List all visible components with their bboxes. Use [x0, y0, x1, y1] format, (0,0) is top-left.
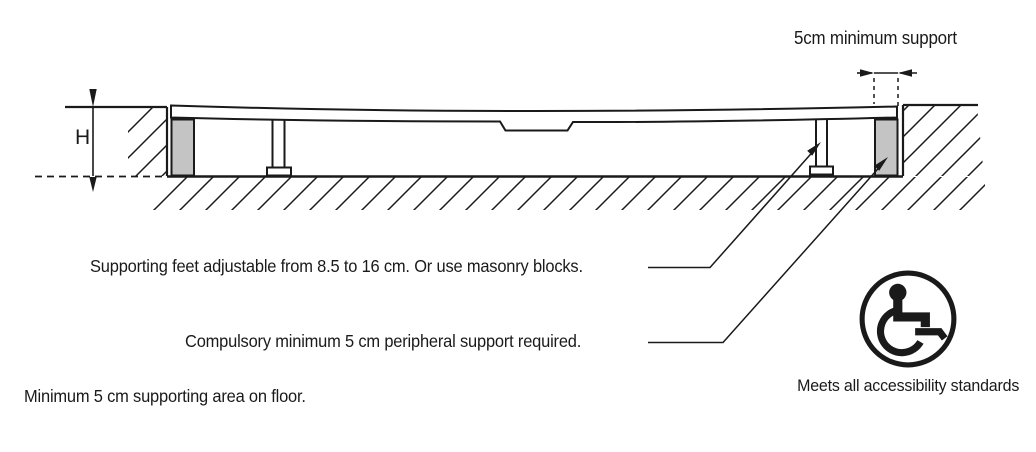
installation-diagram: 5cm minimum support H Supporting feet ad… [0, 0, 1036, 452]
dim-arrow-right [898, 69, 912, 76]
callout-peripheral-support: Compulsory minimum 5 cm peripheral suppo… [185, 331, 581, 352]
left-support-foot [267, 119, 291, 176]
accessibility-badge: Meets all accessibility standards [758, 268, 1036, 396]
height-dimension-label: H [75, 126, 90, 150]
left-wall-hatch [128, 108, 166, 176]
callout-floor-support: Minimum 5 cm supporting area on floor. [24, 386, 306, 407]
left-peripheral-block [172, 120, 195, 176]
width-dimension-5cm [857, 69, 917, 106]
height-arrow-bottom [89, 177, 96, 192]
dimension-label-5cm: 5cm minimum support [794, 28, 957, 49]
right-support-foot [810, 119, 833, 175]
callout-supporting-feet: Supporting feet adjustable from 8.5 to 1… [90, 256, 583, 277]
accessibility-caption: Meets all accessibility standards [797, 376, 1019, 396]
wheelchair-icon [857, 268, 959, 370]
right-wall-hatch [904, 106, 984, 176]
dim-arrow-left [860, 69, 874, 76]
height-arrow-top [89, 89, 96, 107]
